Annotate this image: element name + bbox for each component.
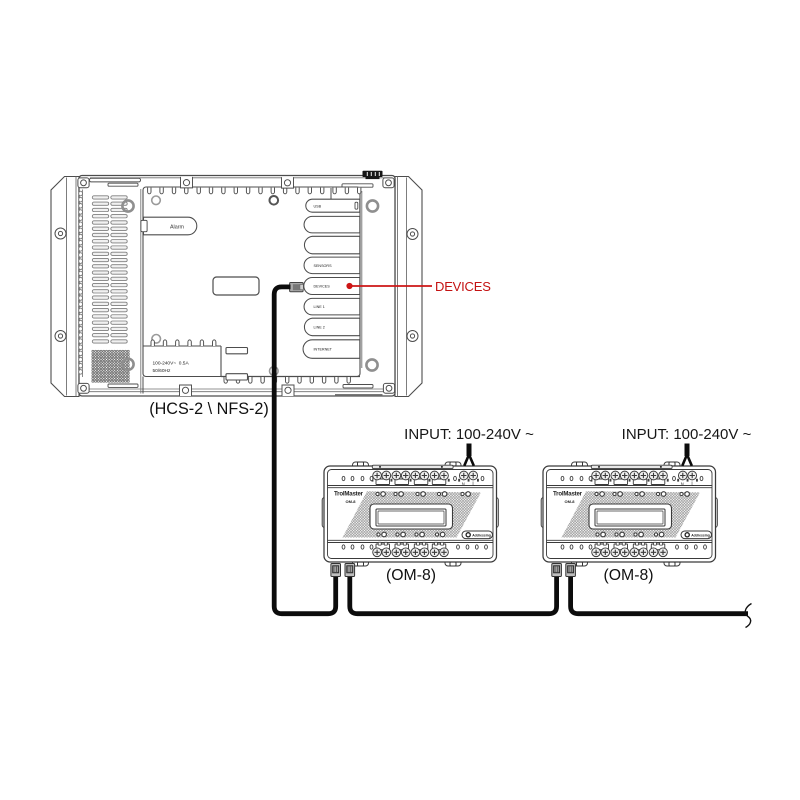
svg-text:L: L	[472, 482, 475, 488]
svg-text:TrolMaster: TrolMaster	[553, 491, 583, 498]
svg-text:(OM-8): (OM-8)	[603, 567, 653, 584]
svg-text:L: L	[691, 482, 694, 488]
svg-text:Addressing: Addressing	[691, 534, 710, 538]
svg-text:LINE 2: LINE 2	[314, 326, 325, 330]
svg-text:INTERNET: INTERNET	[314, 348, 333, 352]
svg-text:50/60Hz: 50/60Hz	[153, 368, 171, 374]
svg-text:N: N	[681, 481, 684, 486]
svg-text:N: N	[462, 481, 465, 486]
svg-text:SENSORS: SENSORS	[314, 264, 333, 268]
svg-text:USB: USB	[314, 204, 322, 208]
svg-text:100-240V~ 0.5A: 100-240V~ 0.5A	[153, 361, 190, 367]
svg-text:DEVICES: DEVICES	[435, 279, 491, 294]
svg-text:Addressing: Addressing	[472, 534, 491, 538]
svg-text:DEVICES: DEVICES	[314, 285, 331, 289]
svg-text:INPUT: 100-240V ~: INPUT: 100-240V ~	[404, 426, 534, 443]
svg-text:LINE 1: LINE 1	[314, 305, 325, 309]
svg-text:Alarm: Alarm	[170, 225, 185, 231]
svg-text:(OM-8): (OM-8)	[386, 567, 436, 584]
svg-text:OM-8: OM-8	[565, 499, 576, 504]
svg-text:OM-8: OM-8	[346, 499, 357, 504]
svg-text:TrolMaster: TrolMaster	[334, 491, 364, 498]
svg-text:INPUT: 100-240V ~: INPUT: 100-240V ~	[622, 426, 752, 443]
svg-text:(HCS-2 \ NFS-2): (HCS-2 \ NFS-2)	[149, 400, 269, 418]
